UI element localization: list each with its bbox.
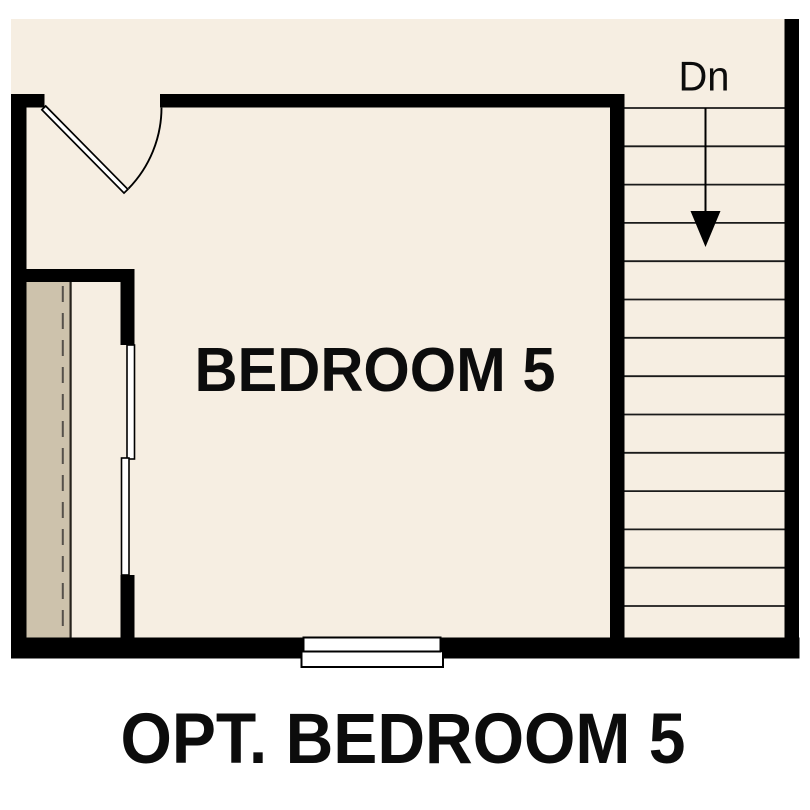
svg-text:OPT. BEDROOM 5: OPT. BEDROOM 5 xyxy=(121,700,686,779)
svg-text:BEDROOM 5: BEDROOM 5 xyxy=(195,335,556,405)
svg-text:Dn: Dn xyxy=(679,53,730,100)
